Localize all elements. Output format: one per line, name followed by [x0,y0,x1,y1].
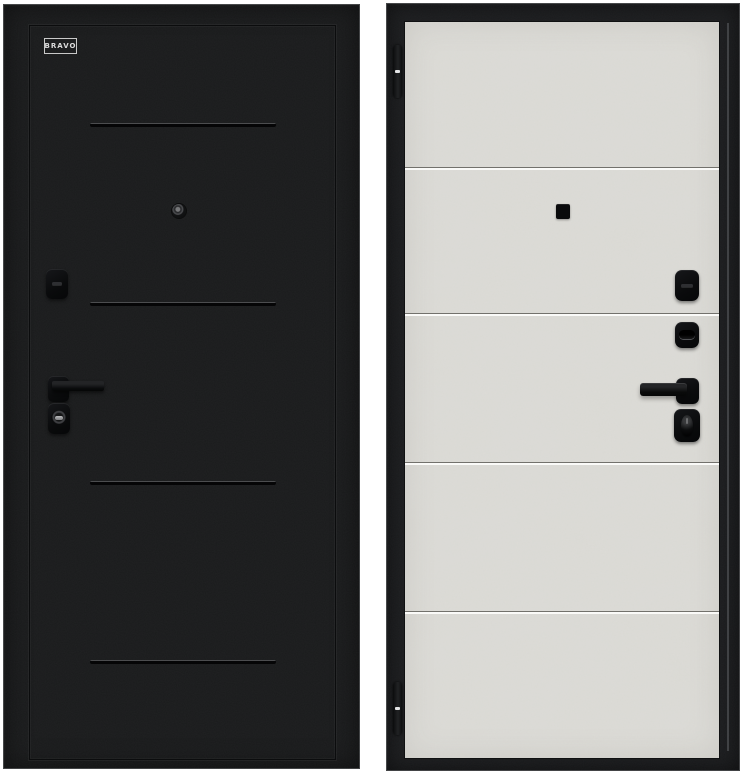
deadbolt-escutcheon [675,270,699,301]
escutcheon-slot [681,284,693,287]
door-interior-concrete-side [386,3,740,771]
frame-edge-bevel [727,23,729,751]
groove-line [405,462,719,465]
exterior-inner-panel-seam [29,25,336,760]
key-cylinder-escutcheon [674,409,700,442]
key-cylinder-escutcheon [48,403,70,434]
thumb-turn-escutcheon [675,322,699,348]
keyhole-slot [55,416,63,420]
groove-line [90,302,276,306]
night-latch-cover [46,269,68,299]
product-photo-door-two-sides: BRAVO [0,0,742,774]
groove-line [405,611,719,614]
brand-logo-text: BRAVO [45,43,77,50]
latch-slot [52,282,62,285]
groove-line [90,123,276,127]
door-exterior-black-side: BRAVO [3,4,360,769]
thumb-turn-knob [679,330,695,339]
hinge-pin [395,70,400,73]
brand-logo-badge: BRAVO [44,38,77,54]
hinge-pin [395,707,400,710]
hinge-top [393,45,402,98]
groove-line [405,313,719,316]
knob-highlight [686,418,688,424]
hinge-bottom [393,682,402,735]
peephole-icon [556,204,570,219]
door-handle-lever [640,383,687,396]
groove-line [90,660,276,664]
peephole-icon [172,204,186,218]
door-handle-lever [52,381,104,391]
groove-line [405,167,719,170]
groove-line [90,481,276,485]
